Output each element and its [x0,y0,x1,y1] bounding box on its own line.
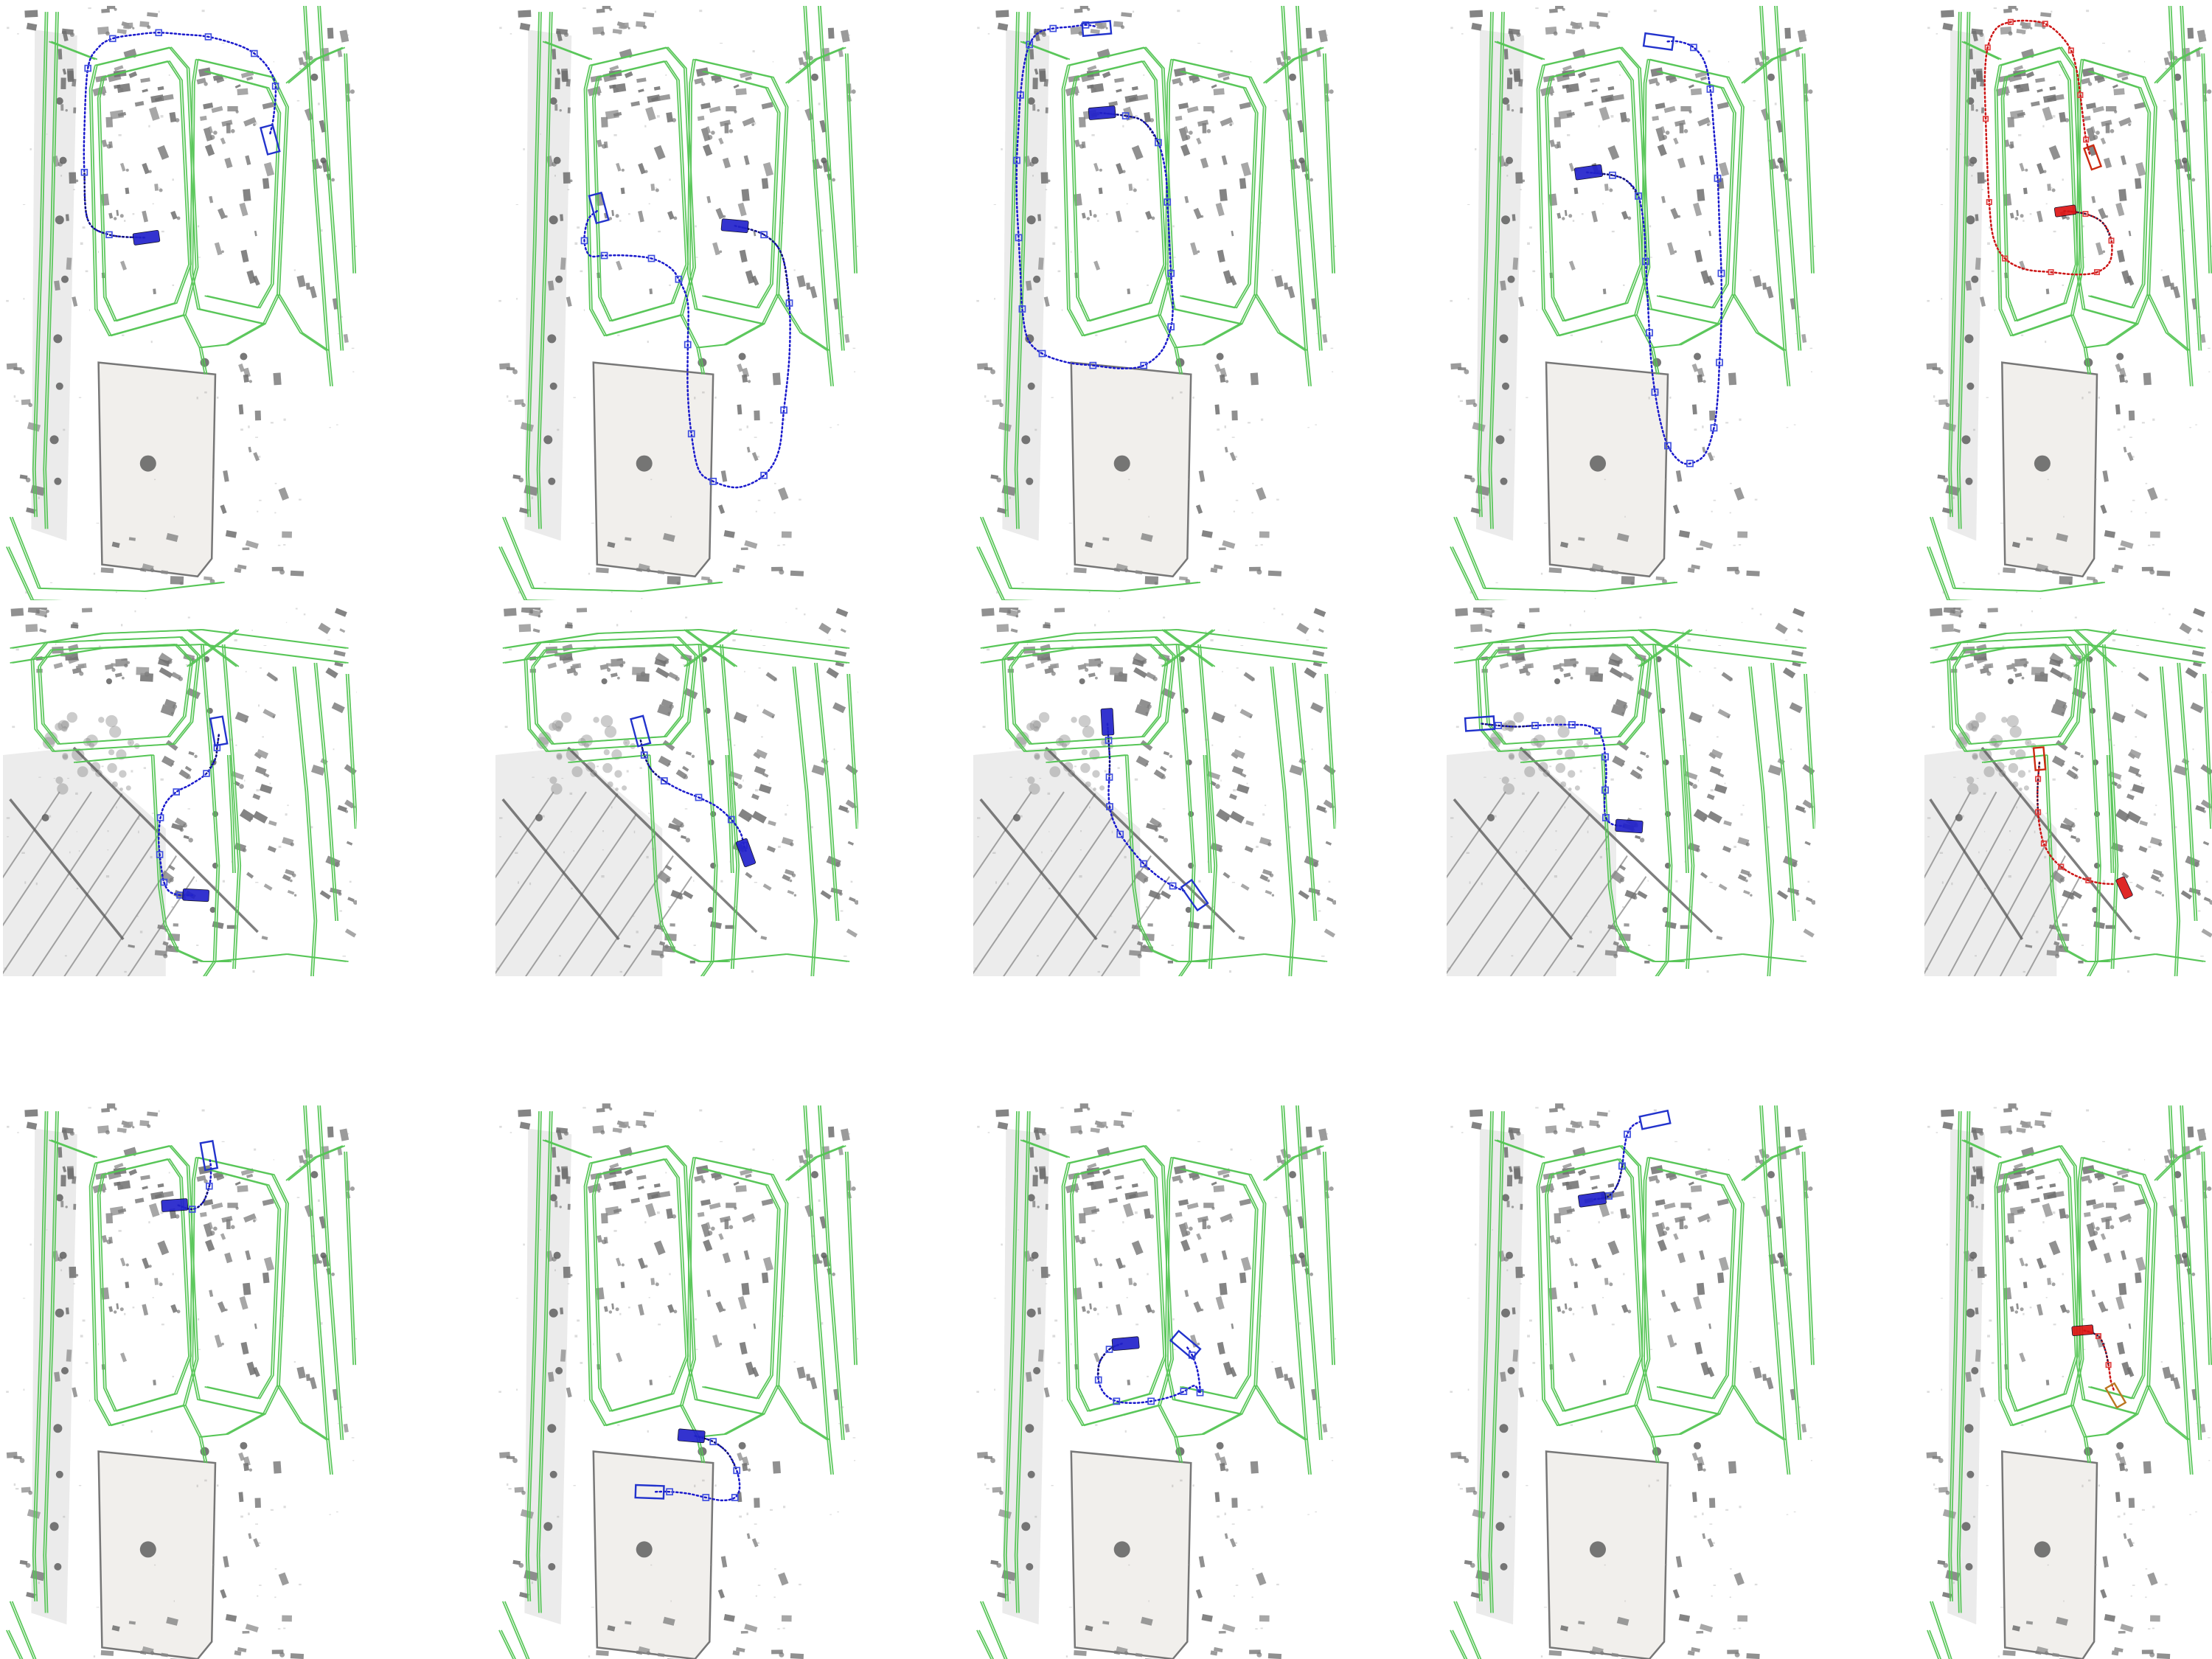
roadside-blob [2116,1442,2124,1450]
map-blob-cluster [1179,123,1211,255]
map-background [1927,6,2212,600]
map-panel-r3c4 [1447,1082,1815,1659]
map-background [973,608,1336,976]
map-panel-r2c1 [3,608,357,976]
map-blob-cluster [220,364,289,514]
roadside-blob [1778,1253,1784,1259]
map-blob-cluster [2115,155,2146,285]
ego-vehicle [1112,1337,1139,1351]
roadside-blob [543,1522,552,1531]
map-background [1924,608,2212,976]
roadside-blob [2182,1253,2188,1259]
roadside-blob [1554,678,1560,684]
roadside-blob [1663,759,1669,765]
map-blob-cluster [2174,608,2212,813]
map-background [498,1104,858,1659]
map-blob-cluster [694,67,773,126]
map-blob-cluster [588,49,671,119]
roadside-blob [320,1253,326,1259]
map-blob-cluster [638,1203,677,1385]
roadside-blob [1028,97,1035,105]
roadside-blob [1186,759,1192,765]
map-panel-r1c2 [495,6,858,600]
roadside-blob [54,1563,61,1571]
roadside-blob [547,334,556,343]
map-blob-cluster [1116,1203,1155,1385]
map-blob-cluster [226,1614,304,1659]
roadside-blob [1502,1194,1509,1201]
roadside-blob [1767,74,1775,81]
map-blob-cluster [1116,107,1155,294]
map-blob-cluster [1135,740,1173,900]
map-blob-cluster [197,67,274,126]
ego-vehicle [1574,164,1603,180]
roadside-blob [555,276,563,283]
roadside-blob [1013,814,1020,821]
roadside-blob [1971,1367,1978,1374]
map-panel-r1c5 [1924,6,2212,600]
roadside-blob [1114,1541,1130,1557]
roadside-blob [1506,1252,1513,1259]
map-blob-cluster [2081,67,2146,126]
roadside-blob [2116,353,2124,361]
roadside-blob [1289,74,1296,81]
roadside-blob [1027,1309,1036,1318]
map-blob-cluster [1679,1614,1760,1659]
map-background [6,6,357,600]
map-blob-cluster [1455,608,1540,633]
pavement-patch [495,748,662,976]
map-blob-cluster [1649,1165,1729,1222]
goal-box [1171,1331,1200,1359]
roadside-blob [1966,478,1973,485]
map-blob-cluster [1540,49,1624,119]
map-background [6,1104,357,1659]
roadside-blob [1965,1424,1974,1433]
roadside-blob [550,1471,557,1478]
roadside-blob [636,456,653,472]
roadside-blob [636,1541,653,1557]
map-background [495,608,858,976]
roadside-blob [550,97,557,105]
ego-vehicle [2115,876,2133,899]
map-blob-cluster [1196,364,1267,514]
trajectory-path [84,32,276,237]
map-blob-cluster [701,1219,733,1347]
roadside-blob [2034,456,2051,472]
roadside-blob [1028,1194,1035,1201]
roadside-blob [53,1424,62,1433]
map-background [1927,1104,2212,1659]
map-blob-cluster [1179,1219,1211,1347]
map-blob-cluster [718,1453,789,1599]
map-panel-r3c3 [973,1082,1336,1659]
map-blob-cluster [2003,1213,2028,1369]
ego-vehicle [2072,1325,2094,1336]
map-blob-cluster [1202,530,1282,577]
map-background [976,6,1336,600]
roadside-blob [1955,814,1963,821]
map-background [498,6,858,600]
map-blob-cluster [1930,608,1998,633]
map-panel-r3c5 [1924,1082,2212,1659]
map-panel-r2c3 [973,608,1336,976]
roadside-blob [50,1522,59,1531]
roadside-blob [1966,1471,1974,1478]
roadside-blob [2034,1541,2051,1557]
roadside-blob [1487,814,1495,821]
map-blob-cluster [1777,841,1815,938]
pavement-patch [973,748,1140,976]
roadside-blob [1027,215,1036,224]
map-blob-cluster [1679,530,1760,577]
roadside-blob [821,158,827,164]
map-blob-cluster [981,608,1065,633]
roadside-blob [1966,1563,1973,1571]
roadside-blob [1508,1367,1515,1374]
roadside-blob [1590,456,1606,472]
map-blob-cluster [738,1251,773,1377]
roadside-blob [106,678,112,684]
map-blob-cluster [2104,530,2171,577]
map-blob-cluster [2037,107,2070,294]
roadside-blob [56,97,63,105]
roadside-blob [1778,158,1784,164]
ego-vehicle [1615,819,1644,833]
roadside-blob [240,353,247,361]
roadside-blob [549,1309,558,1318]
roadside-blob [811,1171,818,1178]
map-blob-cluster [638,107,677,294]
ego-vehicle [183,888,209,902]
map-blob-cluster [588,1147,671,1215]
map-blob-cluster [240,1251,275,1377]
roadside-blob [1502,1471,1509,1478]
map-blob-cluster [11,608,93,633]
roadside-blob [1079,678,1085,684]
roadside-blob [1508,276,1515,283]
roadside-blob [555,1367,563,1374]
roadside-blob [310,1171,318,1178]
roadside-blob [54,478,61,485]
roadside-blob [60,157,67,164]
roadside-blob [1496,435,1505,444]
roadside-blob [56,383,63,390]
roadside-blob [554,1252,561,1259]
map-blob-cluster [724,530,804,577]
map-blob-cluster [504,608,587,633]
map-blob-cluster [1065,1147,1149,1215]
roadside-blob [1962,435,1971,444]
map-background [976,1104,1336,1659]
goal-box [1640,1110,1671,1129]
roadside-blob [548,1563,555,1571]
map-blob-cluster [160,740,198,900]
map-blob-cluster [2181,841,2212,938]
roadside-blob [1026,1563,1033,1571]
roadside-blob [60,1252,67,1259]
roadside-blob [2182,158,2188,164]
roadside-blob [1032,1252,1039,1259]
ego-vehicle [1101,709,1114,736]
map-blob-cluster [1673,1453,1745,1599]
map-blob-cluster [724,1614,804,1659]
roadside-blob [811,74,818,81]
goal-box [210,717,227,746]
roadside-blob [1966,383,1974,390]
roadside-blob [709,759,714,765]
roadside-blob [821,1253,827,1259]
roadside-blob [1501,215,1510,224]
roadside-blob [1032,157,1039,164]
ego-vehicle [161,1198,188,1211]
roadside-blob [56,1194,63,1201]
roadside-blob [547,1424,556,1433]
roadside-blob [602,678,608,684]
roadside-blob [1021,1522,1030,1531]
roadside-blob [140,456,156,472]
map-blob-cluster [2100,1453,2157,1599]
map-panel-r2c2 [495,608,858,976]
trajectory-figure-grid [0,0,2212,1659]
roadside-blob [1590,1541,1606,1557]
roadside-blob [1033,1367,1040,1374]
roadside-blob [2008,678,2014,684]
roadside-blob [1021,435,1030,444]
roadside-blob [320,158,326,164]
roadside-blob [1496,1522,1505,1531]
roadside-blob [535,814,543,821]
map-blob-cluster [1290,608,1336,813]
roadside-blob [1026,478,1033,485]
map-blob-cluster [2081,1165,2146,1222]
roadside-blob [1966,215,1975,224]
roadside-blob [1694,1442,1701,1450]
map-panel-r1c1 [3,6,357,600]
roadside-blob [240,1442,247,1450]
roadside-blob [310,74,318,81]
roadside-blob [61,276,69,283]
roadside-blob [1502,383,1509,390]
map-blob-cluster [204,123,235,255]
roadside-blob [55,1309,64,1318]
map-blob-cluster [1649,67,1729,126]
roadside-blob [1025,1424,1034,1433]
pavement-patch [1447,748,1616,976]
map-panel-r1c3 [973,6,1336,600]
roadside-blob [549,215,558,224]
map-blob-cluster [1693,1251,1729,1377]
map-panel-r2c4 [1447,608,1815,976]
roadside-blob [2094,863,2100,869]
map-blob-cluster [142,107,180,294]
roadside-blob [53,334,62,343]
roadside-blob [550,1194,557,1201]
map-blob-cluster [320,841,357,938]
roadside-blob [55,215,64,224]
ego-vehicle [133,230,160,245]
roadside-blob [61,1367,69,1374]
map-blob-cluster [239,156,274,286]
map-blob-cluster [718,364,789,514]
map-blob-cluster [812,608,858,813]
map-blob-cluster [1216,155,1251,285]
map-blob-cluster [1172,1165,1251,1222]
roadside-blob [50,435,59,444]
roadside-blob [739,353,746,361]
map-blob-cluster [204,1219,235,1347]
roadside-blob [1298,1253,1304,1259]
map-blob-cluster [226,530,304,577]
map-blob-cluster [92,49,173,119]
roadside-blob [1767,1171,1775,1178]
map-background [1450,1104,1815,1659]
roadside-blob [1217,1442,1224,1450]
roadside-blob [1028,1471,1035,1478]
pavement-patch [3,748,166,976]
roadside-blob [1500,478,1508,485]
map-blob-cluster [2051,740,2084,900]
map-panel-r3c1 [3,1082,357,1659]
map-blob-cluster [1202,1614,1282,1659]
map-background [1447,608,1815,976]
roadside-blob [548,478,555,485]
roadside-blob [1969,1252,1977,1259]
map-blob-cluster [694,1165,773,1222]
map-blob-cluster [1673,364,1745,514]
ego-vehicle [1088,105,1116,119]
map-blob-cluster [2115,1251,2146,1377]
roadside-blob [2094,811,2100,817]
map-blob-cluster [1298,841,1336,938]
roadside-blob [1969,157,1977,164]
roadside-blob [1500,334,1509,343]
map-blob-cluster [1591,1203,1631,1385]
roadside-blob [42,814,49,821]
map-blob-cluster [220,1453,289,1599]
roadside-blob [554,157,561,164]
map-blob-cluster [821,841,858,938]
roadside-blob [543,435,552,444]
map-blob-cluster [1693,155,1729,285]
ego-vehicle [678,1429,705,1443]
map-blob-cluster [142,1203,180,1385]
map-blob-cluster [2100,364,2157,514]
map-background [3,608,357,976]
roadside-blob [1114,456,1130,472]
map-blob-cluster [1172,67,1251,126]
map-blob-cluster [1655,1219,1688,1347]
roadside-blob [2087,656,2093,662]
map-blob-cluster [1591,107,1631,295]
map-blob-cluster [2037,1203,2070,1385]
roadside-blob [1289,1171,1296,1178]
map-background [1450,6,1815,600]
map-blob-cluster [1216,1251,1251,1377]
map-blob-cluster [657,740,695,900]
roadside-blob [1971,276,1978,283]
roadside-blob [739,1442,746,1450]
map-blob-cluster [2104,1614,2171,1659]
roadside-blob [1217,353,1224,361]
roadside-blob [1962,1522,1971,1531]
roadside-blob [56,1471,63,1478]
roadside-blob [140,1541,156,1557]
map-blob-cluster [1655,123,1688,255]
roadside-blob [1033,276,1040,283]
map-panel-r1c4 [1447,6,1815,600]
map-panel-r3c2 [495,1082,858,1659]
roadside-blob [1694,353,1701,361]
map-blob-cluster [1768,608,1815,813]
roadside-blob [1966,1309,1975,1318]
roadside-blob [1506,157,1513,164]
roadside-blob [1501,1309,1510,1318]
ego-vehicle [721,219,748,233]
roadside-blob [1965,334,1974,343]
map-blob-cluster [701,123,733,255]
roadside-blob [1502,97,1509,105]
roadside-blob [1500,1424,1509,1433]
map-blob-cluster [197,1165,274,1222]
roadside-blob [1028,383,1035,390]
roadside-blob [1298,158,1304,164]
map-panel-r2c5 [1924,608,2212,976]
roadside-blob [1500,1563,1508,1571]
map-blob-cluster [2003,117,2028,279]
roadside-blob [550,383,557,390]
map-blob-cluster [1196,1453,1267,1599]
